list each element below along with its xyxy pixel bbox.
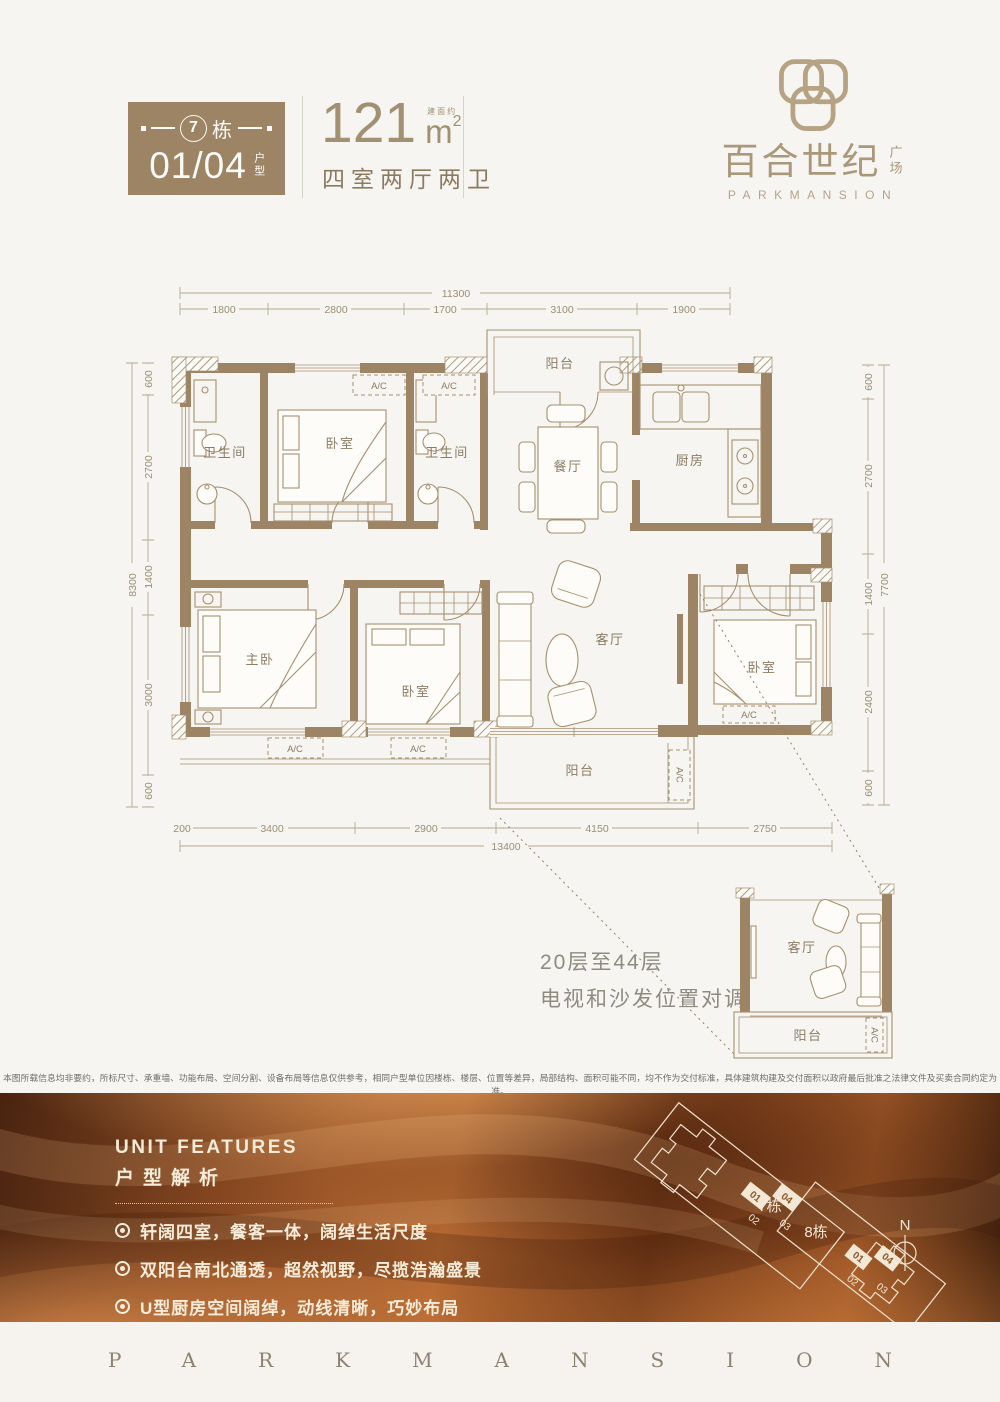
room-label-bath2: 卫生间	[425, 445, 469, 460]
badge-unit-row: 01/04 户型	[149, 147, 264, 184]
feature-item: 双阳台南北通透，超然视野，尽揽浩瀚盛景	[115, 1256, 545, 1281]
dim-label: 3000	[143, 683, 155, 707]
ac-label: A/C	[371, 381, 387, 392]
room-label-bath1: 卫生间	[203, 445, 247, 460]
dim-label: 2750	[753, 823, 777, 835]
area-unit-symbol: m2	[425, 117, 461, 147]
brand-logo: 百合世纪 广场 PARKMANSION	[688, 56, 938, 202]
features-title-cn: 户型解析	[115, 1163, 545, 1190]
area-unit-m: m	[425, 117, 453, 147]
area-value: 121	[321, 92, 416, 155]
dim-label: 600	[143, 370, 155, 388]
dimension-top: 11300 1800 2800 1700 3100 1900	[180, 287, 730, 316]
dim-label: 1800	[212, 304, 236, 316]
footer: PARKMANSION	[0, 1322, 1000, 1402]
dim-label: 1400	[863, 582, 875, 606]
logo-title-cn-small: 广场	[886, 145, 905, 177]
ac-label: A/C	[441, 381, 457, 392]
building-suffix: 栋	[212, 114, 233, 143]
ac-label: A/C	[674, 767, 685, 783]
ac-label: A/C	[287, 744, 303, 755]
room-label-balcony-top: 阳台	[545, 356, 574, 371]
inset-living-label: 客厅	[787, 940, 816, 955]
area-unit-sup: 2	[453, 115, 462, 129]
feature-item: 轩阔四室，餐客一体，阔绰生活尺度	[115, 1218, 545, 1243]
dim-label: 3100	[550, 304, 574, 316]
room-label-bedroom-mid: 卧室	[401, 684, 430, 699]
unit-features: UNIT FEATURES 户型解析 轩阔四室，餐客一体，阔绰生活尺度 双阳台南…	[115, 1137, 545, 1322]
features-band: UNIT FEATURES 户型解析 轩阔四室，餐客一体，阔绰生活尺度 双阳台南…	[0, 1093, 1000, 1322]
building-badge: 7 栋 01/04 户型	[128, 102, 285, 195]
area-unit: 建面约 m2	[425, 106, 461, 147]
header-divider	[302, 96, 303, 198]
dim-right-total: 7700	[879, 573, 891, 597]
room-label-bedroom-top: 卧室	[325, 436, 354, 451]
dimension-left: 8300 600 2700 1400 3000 600	[126, 363, 155, 807]
dimension-bottom: 200 3400 2900 4150 2750 13400	[171, 822, 832, 854]
features-title-en: UNIT FEATURES	[115, 1137, 545, 1159]
bullet-ring-icon	[115, 1299, 130, 1314]
furniture	[194, 380, 816, 729]
footer-brand-text: PARKMANSION	[0, 1348, 1000, 1372]
dim-label: 2800	[324, 304, 348, 316]
site-unit-label: 03	[874, 1281, 890, 1297]
dim-label: 200	[173, 823, 191, 835]
site-building7-label: 7栋	[758, 1197, 781, 1215]
site-plan: 01 04 02 03 7栋 04 01 02 03 8栋 N	[620, 1095, 980, 1322]
badge-line-icon	[238, 127, 262, 129]
badge-line-icon	[151, 127, 175, 129]
site-unit-label: 03	[777, 1218, 793, 1234]
dim-label: 1700	[433, 304, 457, 316]
floor-plan: 11300 1800 2800 1700 3100 1900 200 3400 …	[110, 272, 910, 882]
inset-balcony-label: 阳台	[793, 1028, 822, 1043]
features-divider	[115, 1203, 333, 1204]
site-building8-label: 8栋	[804, 1223, 827, 1241]
unit-type-label: 户型	[253, 152, 264, 178]
dim-label: 2700	[143, 455, 155, 479]
room-label-bedroom-right: 卧室	[747, 660, 776, 675]
dim-left-total: 8300	[127, 573, 139, 597]
site-building-7: 01 04 02 03	[633, 1103, 844, 1291]
room-label-balcony-bottom: 阳台	[565, 763, 594, 778]
feature-text: 双阳台南北通透，超然视野，尽揽浩瀚盛景	[140, 1256, 482, 1281]
dim-label: 2900	[414, 823, 438, 835]
dim-label: 1900	[672, 304, 696, 316]
badge-square-icon	[267, 126, 272, 131]
dim-label: 600	[863, 779, 875, 797]
area-block: 121 建面约 m2	[321, 92, 462, 155]
bullet-ring-icon	[115, 1223, 130, 1238]
building-number: 7	[180, 115, 207, 142]
header-divider	[463, 96, 464, 198]
room-label-kitchen: 厨房	[675, 453, 704, 468]
badge-building-row: 7 栋	[141, 114, 272, 143]
dim-label: 4150	[585, 823, 609, 835]
dim-top-total: 11300	[442, 288, 471, 300]
dimension-right: 600 2700 1400 2400 600 7700	[862, 365, 892, 805]
dim-label: 3400	[260, 823, 284, 835]
dim-label: 2700	[863, 464, 875, 488]
dim-label: 2400	[863, 690, 875, 714]
feature-item: U型厨房空间阔绰，动线清晰，巧妙布局	[115, 1294, 545, 1319]
dim-label: 1400	[143, 565, 155, 589]
ac-label: A/C	[869, 1027, 880, 1043]
ac-label: A/C	[741, 710, 757, 721]
unit-numbers: 01/04	[149, 147, 247, 184]
room-label-master: 主卧	[245, 652, 274, 667]
room-label-dining: 餐厅	[553, 459, 582, 474]
ac-label: A/C	[410, 744, 426, 755]
room-label-living: 客厅	[595, 632, 624, 647]
dim-bottom-total: 13400	[491, 841, 520, 853]
logo-title-cn: 百合世纪	[722, 142, 882, 183]
logo-title: 百合世纪 广场	[688, 142, 938, 183]
site-building-8: 04 01 02 03	[777, 1182, 945, 1322]
dim-label: 600	[863, 373, 875, 391]
logo-knot-icon	[769, 56, 857, 138]
feature-text: 轩阔四室，餐客一体，阔绰生活尺度	[140, 1218, 428, 1243]
compass-n-label: N	[900, 1217, 911, 1234]
inset-floor-plan: 客厅 A/C 阳台	[520, 880, 940, 1070]
logo-title-en: PARKMANSION	[688, 188, 938, 202]
walls	[172, 330, 832, 809]
bullet-ring-icon	[115, 1261, 130, 1276]
badge-square-icon	[141, 126, 146, 131]
dim-label: 600	[143, 782, 155, 800]
poster-page: 7 栋 01/04 户型 121 建面约 m2 四室两厅两卫 百合世纪 广场	[0, 0, 1000, 1402]
site-unit-label: 02	[844, 1273, 860, 1289]
features-list: 轩阔四室，餐客一体，阔绰生活尺度 双阳台南北通透，超然视野，尽揽浩瀚盛景 U型厨…	[115, 1218, 545, 1322]
feature-text: U型厨房空间阔绰，动线清晰，巧妙布局	[140, 1294, 459, 1319]
room-layout-text: 四室两厅两卫	[322, 160, 496, 194]
